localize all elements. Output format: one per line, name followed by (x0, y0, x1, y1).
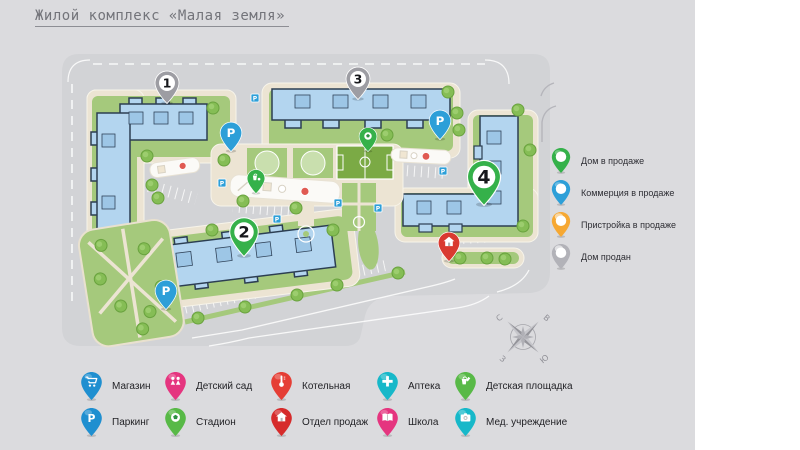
svg-text:P: P (253, 96, 258, 103)
parking-icon: P (80, 407, 103, 437)
compass-north-label: С (494, 313, 504, 324)
svg-text:2: 2 (238, 223, 249, 242)
poi-label: Паркинг (112, 417, 149, 428)
svg-text:P: P (220, 181, 225, 188)
compass-south-label: Ю (538, 353, 551, 366)
pin-green-icon (551, 147, 571, 174)
svg-text:4: 4 (477, 167, 490, 188)
legend-label: Дом продан (581, 252, 631, 262)
poi-item-sales-office: Отдел продаж (270, 407, 368, 437)
camera-icon (454, 407, 477, 437)
svg-text:1: 1 (163, 75, 172, 90)
site-plan-slide: Жилой комплекс «Малая земля» (0, 0, 695, 450)
legend-item-house-for-sale: Дом в продаже (551, 147, 644, 174)
svg-text:P: P (88, 412, 96, 425)
svg-text:P: P (336, 201, 341, 208)
book-icon (376, 407, 399, 437)
soccer-ball-icon (364, 132, 371, 139)
compass-east-label: В (542, 313, 552, 323)
legend-label: Дом в продаже (581, 156, 644, 166)
svg-text:P: P (376, 206, 381, 213)
poi-item-pharmacy: Аптека (376, 371, 440, 401)
poi-item-boiler: Котельная (270, 371, 350, 401)
svg-text:3: 3 (354, 71, 363, 86)
house-icon (270, 407, 293, 437)
poi-item-parking: P Паркинг (80, 407, 149, 437)
poi-item-stadium: Стадион (164, 407, 236, 437)
children-icon (164, 371, 187, 401)
cart-icon (80, 371, 103, 401)
poi-item-school: Школа (376, 407, 438, 437)
site-plan-map: P P P P P P P P P P (57, 46, 557, 368)
pin-gray-icon (551, 243, 571, 270)
poi-label: Детская площадка (486, 381, 573, 392)
compass-west-label: З (498, 354, 508, 364)
svg-text:P: P (162, 284, 171, 298)
poi-label: Школа (408, 417, 438, 428)
poi-label: Аптека (408, 381, 440, 392)
svg-text:P: P (275, 217, 280, 224)
legend-item-house-sold: Дом продан (551, 243, 631, 270)
soccer-ball-icon (164, 407, 187, 437)
svg-text:P: P (436, 114, 445, 128)
poi-label: Котельная (302, 381, 350, 392)
poi-item-playground: Детская площадка (454, 371, 573, 401)
poi-label: Мед. учреждение (486, 417, 567, 428)
poi-label: Магазин (112, 381, 151, 392)
medical-cross-icon (376, 371, 399, 401)
svg-text:P: P (441, 169, 446, 176)
legend-item-commerce-for-sale: Коммерция в продаже (551, 179, 674, 206)
thermometer-icon (270, 371, 293, 401)
compass-rose: С В Ю З (490, 304, 556, 370)
playground-icon (454, 371, 477, 401)
poi-label: Стадион (196, 417, 236, 428)
screenshot: Жилой комплекс «Малая земля» (0, 0, 800, 450)
legend-item-annex-for-sale: Пристройка в продаже (551, 211, 676, 238)
svg-text:P: P (227, 126, 236, 140)
poi-label: Детский сад (196, 381, 252, 392)
pin-orange-icon (551, 211, 571, 238)
playground-strip-east (391, 147, 452, 164)
poi-item-medical: Мед. учреждение (454, 407, 567, 437)
poi-item-kindergarten: Детский сад (164, 371, 252, 401)
poi-item-shop: Магазин (80, 371, 151, 401)
legend-label: Коммерция в продаже (581, 188, 674, 198)
building-1-west-wing (97, 113, 130, 230)
pin-blue-icon (551, 179, 571, 206)
legend-label: Пристройка в продаже (581, 220, 676, 230)
page-title: Жилой комплекс «Малая земля» (35, 8, 289, 27)
poi-label: Отдел продаж (302, 417, 368, 428)
